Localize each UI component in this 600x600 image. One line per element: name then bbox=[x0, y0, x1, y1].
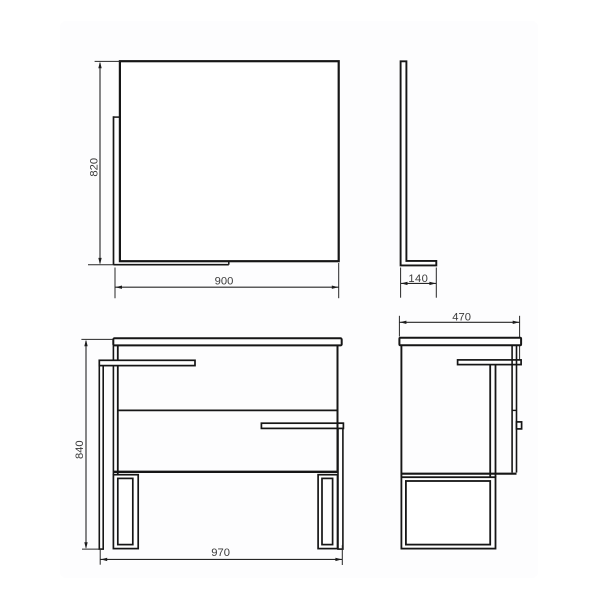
svg-text:900: 900 bbox=[215, 276, 234, 288]
svg-text:840: 840 bbox=[74, 440, 86, 459]
svg-text:140: 140 bbox=[408, 273, 428, 285]
svg-text:470: 470 bbox=[452, 311, 471, 323]
svg-text:820: 820 bbox=[88, 158, 100, 177]
svg-text:970: 970 bbox=[211, 547, 230, 559]
